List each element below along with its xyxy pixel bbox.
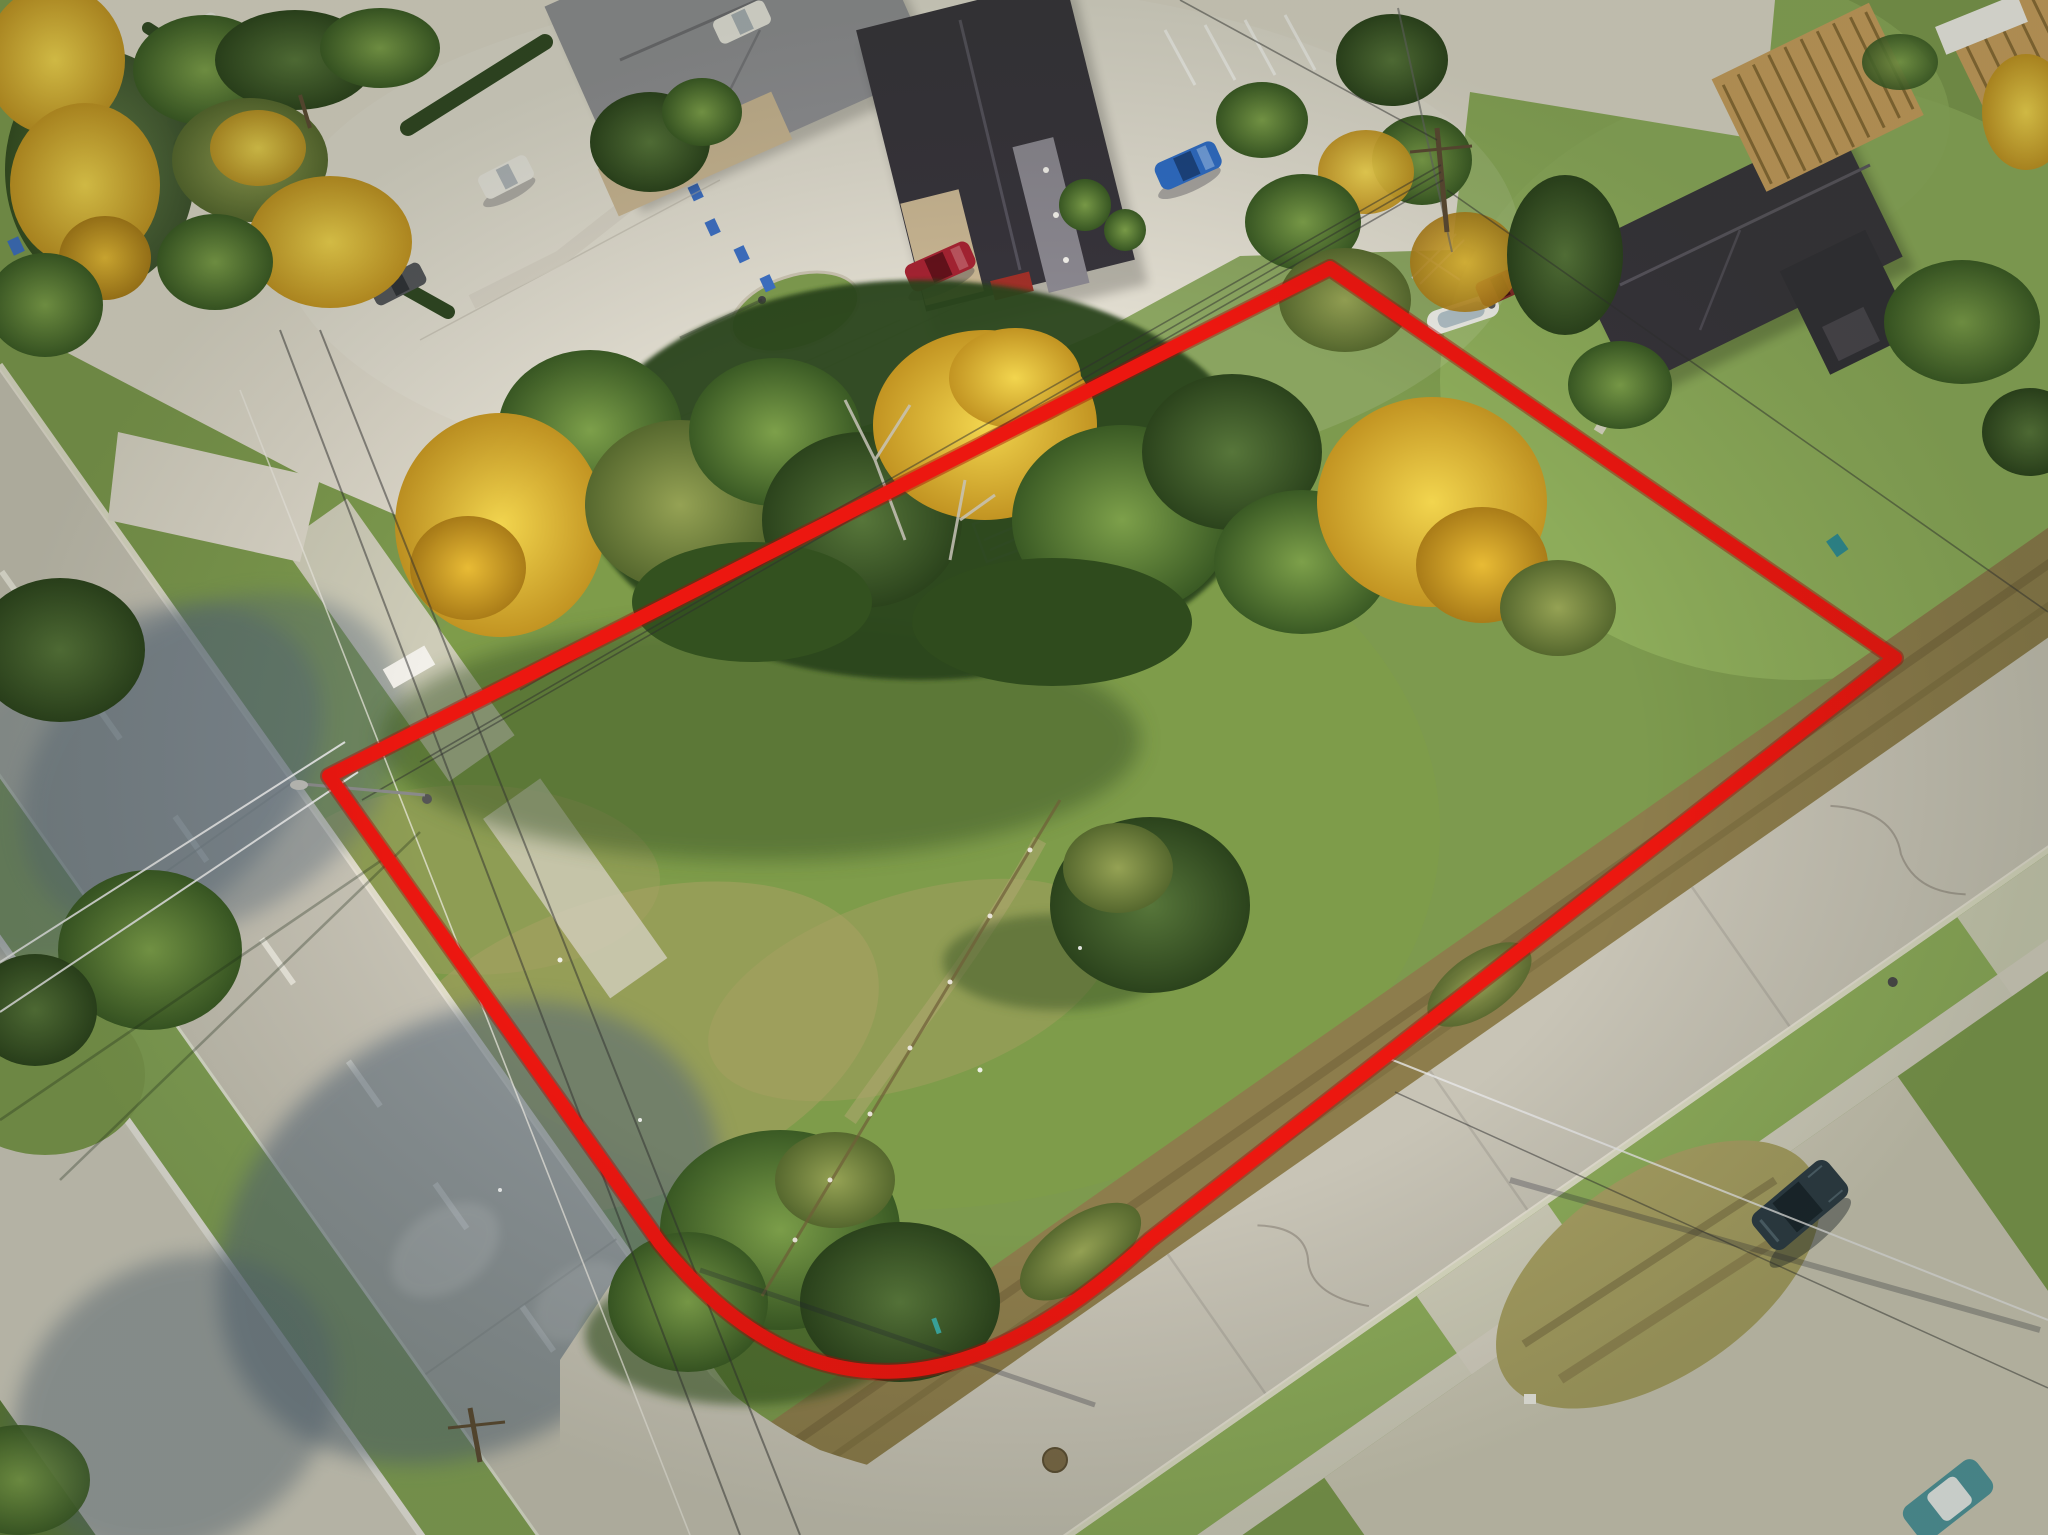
aerial-photo-canvas	[0, 0, 2048, 1535]
aerial-photo	[0, 0, 2048, 1535]
vignette	[0, 0, 2048, 1535]
